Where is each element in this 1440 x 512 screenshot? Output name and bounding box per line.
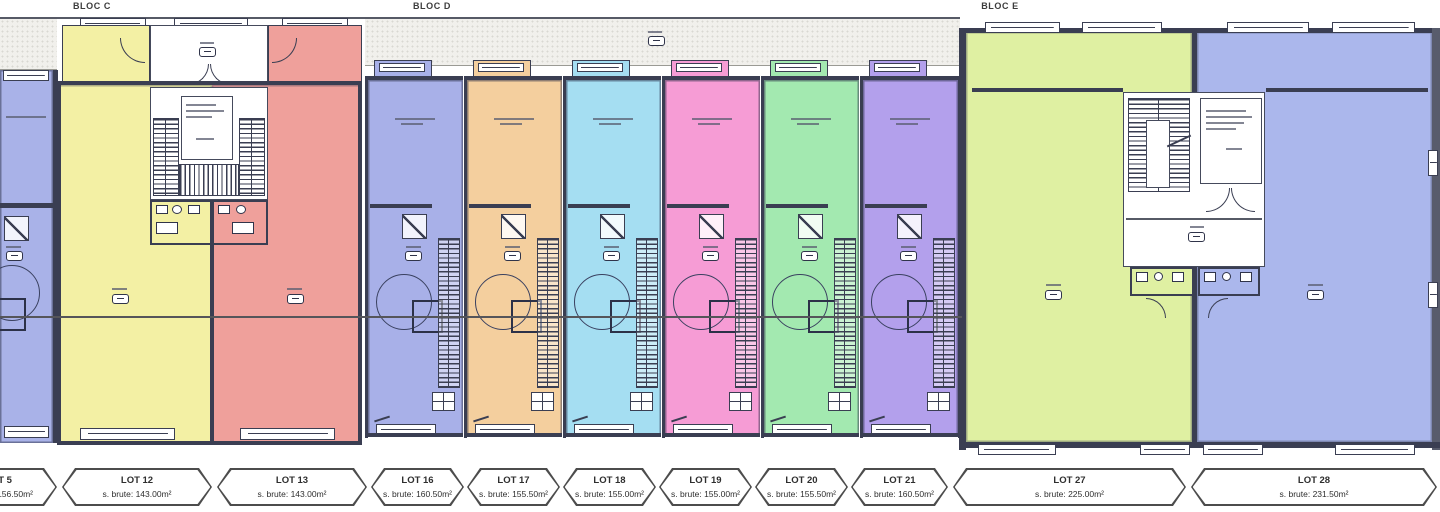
lot17-staircase (537, 238, 559, 388)
lot20-top-wall (764, 76, 859, 80)
lot5-tag-placeholder (6, 246, 21, 248)
lot-tag-area: s. brute: 155.50m² (757, 489, 847, 499)
lot16-window-grid-icon (432, 392, 455, 411)
blocC-party-wall (210, 245, 214, 445)
lot12-tub-icon (156, 222, 178, 234)
lot-tag-title: LOT 17 (469, 475, 559, 486)
lot12-drain-icon (112, 294, 129, 304)
lot19-top-wall (665, 76, 760, 80)
lot13-tub-icon (232, 222, 254, 234)
lot27-bottom-window-2 (1140, 444, 1190, 455)
lot12-shower-icon (188, 205, 200, 214)
lot18-room-label-placeholder (593, 118, 633, 120)
lot-tag-box: LOT 18s. brute: 155.00m² (565, 470, 655, 505)
lot-tag-area: s. brute: 231.50m² (1193, 489, 1436, 499)
lot-tag-area: s. brute: 143.00m² (64, 489, 211, 499)
lot-tag-area: s. brute: 143.00m² (219, 489, 366, 499)
lot18-mid-wall (568, 204, 630, 208)
lot18-balcony-sill (577, 63, 623, 72)
lot-tag-box: LOT 12s. brute: 143.00m² (64, 470, 211, 505)
lot16-room-label-placeholder (395, 118, 435, 120)
hall-drain-icon (199, 47, 216, 57)
bloc-c-label: BLOC C (52, 1, 132, 11)
lot20-window-grid-icon (828, 392, 851, 411)
lot-tag-3: LOT 13s. brute: 143.00m² (217, 468, 367, 506)
lot17-balcony-sill (478, 63, 524, 72)
blocE-stair-core (1146, 120, 1170, 188)
lot-tag-box: LOT 5s. brute: 156.50m² (0, 470, 55, 505)
lot20-staircase (834, 238, 856, 388)
lot-tag-title: LOT 20 (757, 475, 847, 486)
lot5-top-window (3, 70, 49, 81)
lot-tag-area: s. brute: 160.50m² (373, 489, 463, 499)
lot18-skylight-icon (600, 214, 625, 239)
lot18-room-label2-placeholder (599, 123, 621, 125)
lot-tag-box: LOT 17s. brute: 155.50m² (469, 470, 559, 505)
blocC-stair-left (153, 118, 179, 196)
blocE-hall-drain-icon (1188, 232, 1205, 242)
blocE-room-text-3 (1206, 122, 1244, 124)
lot21-bottom-wall (863, 433, 958, 437)
blocE-right-wall (1432, 28, 1440, 450)
lot17-skylight-icon (501, 214, 526, 239)
blocE-room-text-2 (1206, 116, 1252, 118)
lot13-tag-placeholder (287, 288, 302, 290)
lot21-room-label-placeholder (890, 118, 930, 120)
lot-tag-7: LOT 19s. brute: 155.00m² (659, 468, 752, 506)
lot5-counter (0, 298, 26, 331)
lot27-tag-placeholder (1046, 284, 1061, 286)
bloc-d-label: BLOC D (392, 1, 472, 11)
hall-label-placeholder (200, 42, 214, 44)
lot-tag-4: LOT 16s. brute: 160.50m² (371, 468, 464, 506)
lot-tag-area: s. brute: 156.50m² (0, 489, 55, 499)
lot18-bottom-wall (566, 433, 661, 437)
lot27-drain-icon (1045, 290, 1062, 300)
floorplan-canvas: BLOC C BLOC D BLOC E (0, 0, 1440, 512)
lot19-tag-placeholder (703, 246, 718, 248)
lot-tag-6: LOT 18s. brute: 155.00m² (563, 468, 656, 506)
lot-tag-2: LOT 12s. brute: 143.00m² (62, 468, 212, 506)
blocE-left-wall (959, 28, 966, 450)
lot-tag-title: LOT 13 (219, 475, 366, 486)
lot28-top-window-2 (1332, 22, 1415, 33)
blocE-room-text-5 (1226, 148, 1242, 150)
lot-tag-title: LOT 12 (64, 475, 211, 486)
lot20-drain-icon (801, 251, 818, 261)
blocE-room-text-1 (1206, 110, 1246, 112)
lot5-room-label-placeholder (6, 116, 46, 118)
lot17-room-label-placeholder (494, 118, 534, 120)
lot27-bottom-window-1 (978, 444, 1056, 455)
lot-tag-box: LOT 19s. brute: 155.00m² (661, 470, 751, 505)
lot5-divider-wall (0, 203, 53, 208)
lot-tag-title: LOT 16 (373, 475, 463, 486)
lot-tag-box: LOT 20s. brute: 155.50m² (757, 470, 847, 505)
lot16-staircase (438, 238, 460, 388)
lot18-drain-icon (603, 251, 620, 261)
blocE-hall-label-placeholder (1190, 226, 1204, 228)
lot-tag-area: s. brute: 155.50m² (469, 489, 559, 499)
lot12-wc-icon (156, 205, 168, 214)
lot16-tag-placeholder (406, 246, 421, 248)
lot27-top-window-1 (985, 22, 1060, 33)
lot16-top-wall (368, 76, 463, 80)
lot19-balcony-sill (676, 63, 722, 72)
lot21-staircase (933, 238, 955, 388)
lot-tag-title: LOT 18 (565, 475, 655, 486)
lot18-top-wall (566, 76, 661, 80)
lot13-wc-icon (218, 205, 230, 214)
lot27-top-window-2 (1082, 22, 1162, 33)
lot21-window-grid-icon (927, 392, 950, 411)
lot-tag-area: s. brute: 155.00m² (565, 489, 655, 499)
lot21-room-label2-placeholder (896, 123, 918, 125)
lot-tag-8: LOT 20s. brute: 155.50m² (755, 468, 848, 506)
lot-tag-11: LOT 28s. brute: 231.50m² (1191, 468, 1437, 506)
elev-text-3 (186, 116, 212, 118)
lot21-top-wall (863, 76, 958, 80)
lot-tag-area: s. brute: 225.00m² (955, 489, 1185, 499)
blocC-top-wall (57, 81, 362, 85)
lot17-top-wall (467, 76, 562, 80)
lot-tag-box: LOT 27s. brute: 225.00m² (955, 470, 1185, 505)
lot28-right-window-2 (1428, 282, 1438, 308)
lot16-room-label2-placeholder (401, 123, 423, 125)
lot19-drain-icon (702, 251, 719, 261)
lot-tag-area: s. brute: 160.50m² (853, 489, 947, 499)
lot28-bottom-window-2 (1335, 444, 1415, 455)
lot5-fixture-icon (6, 251, 23, 261)
blocC-stair-right (239, 118, 265, 196)
lot5-skylight-icon (4, 216, 29, 241)
lot12-tag-placeholder (112, 288, 127, 290)
lot20-skylight-icon (798, 214, 823, 239)
lot21-skylight-icon (897, 214, 922, 239)
lot28-shower-icon (1240, 272, 1252, 282)
lot21-tag-placeholder (901, 246, 916, 248)
lot-tag-1: LOT 5s. brute: 156.50m² (0, 468, 57, 506)
lot13-drain-icon (287, 294, 304, 304)
lot28-top-window-1 (1227, 22, 1309, 33)
lot20-mid-wall (766, 204, 828, 208)
lot28-right-window-1 (1428, 150, 1438, 176)
lot28-wc-icon (1204, 272, 1216, 282)
lot18-staircase (636, 238, 658, 388)
lot-tag-9: LOT 21s. brute: 160.50m² (851, 468, 948, 506)
lot20-balcony-sill (775, 63, 821, 72)
lot17-room-label2-placeholder (500, 123, 522, 125)
lot-tag-title: LOT 5 (0, 475, 55, 486)
lot19-staircase (735, 238, 757, 388)
blocC-left-wall (57, 85, 61, 445)
lot16-skylight-icon (402, 214, 427, 239)
lot28-sink-icon (1222, 272, 1231, 281)
lot17-mid-wall (469, 204, 531, 208)
section-cut-line (0, 316, 962, 318)
lot-tag-box: LOT 13s. brute: 143.00m² (219, 470, 366, 505)
lot20-bottom-wall (764, 433, 859, 437)
lot-tag-10: LOT 27s. brute: 225.00m² (953, 468, 1186, 506)
lot27-shower-icon (1172, 272, 1184, 282)
lot16-balcony-sill (379, 63, 425, 72)
lot21-balcony-sill (874, 63, 920, 72)
lot27-inner-wall (972, 88, 1123, 92)
lot17-tag-placeholder (505, 246, 520, 248)
lot13-bottom-window (240, 428, 335, 440)
lot16-bottom-wall (368, 433, 463, 437)
elev-text-4 (196, 138, 214, 140)
walkway-left (0, 19, 57, 70)
lot18-tag-placeholder (604, 246, 619, 248)
lot19-room-label-placeholder (692, 118, 732, 120)
lot19-mid-wall (667, 204, 729, 208)
lot-tag-box: LOT 16s. brute: 160.50m² (373, 470, 463, 505)
lot18-window-grid-icon (630, 392, 653, 411)
lot17-window-grid-icon (531, 392, 554, 411)
blocE-room-text-4 (1206, 128, 1236, 130)
lot-tag-box: LOT 28s. brute: 231.50m² (1193, 470, 1436, 505)
elev-text-2 (186, 110, 224, 112)
lot-tag-title: LOT 28 (1193, 475, 1436, 486)
lot13-sink-icon (236, 205, 246, 214)
lot28-inner-wall (1266, 88, 1428, 92)
lot20-room-label2-placeholder (797, 123, 819, 125)
lot27-sink-icon (1154, 272, 1163, 281)
lot19-room-label2-placeholder (698, 123, 720, 125)
lot20-tag-placeholder (802, 246, 817, 248)
bloc-e-label: BLOC E (960, 1, 1040, 11)
blocE-hall-divider (1126, 218, 1262, 220)
lot5-bottom-window (4, 426, 49, 438)
blocC-right-wall (358, 85, 362, 445)
lot19-window-grid-icon (729, 392, 752, 411)
lot17-bottom-wall (467, 433, 562, 437)
lot21-mid-wall (865, 204, 927, 208)
lot19-bottom-wall (665, 433, 760, 437)
elev-text-1 (186, 104, 216, 106)
walkway-label-placeholder (648, 31, 662, 33)
lot27-wc-icon (1136, 272, 1148, 282)
lot12-sink-icon (172, 205, 182, 214)
lot-tag-title: LOT 19 (661, 475, 751, 486)
lot16-drain-icon (405, 251, 422, 261)
lot-tag-5: LOT 17s. brute: 155.50m² (467, 468, 560, 506)
lot12-bottom-window (80, 428, 175, 440)
lot-tag-title: LOT 27 (955, 475, 1185, 486)
lot17-drain-icon (504, 251, 521, 261)
lot28-tag-placeholder (1308, 284, 1323, 286)
lot19-skylight-icon (699, 214, 724, 239)
lot21-drain-icon (900, 251, 917, 261)
walkway-drain-icon (648, 36, 665, 46)
blocC-stair-bottom (179, 164, 239, 196)
lot16-mid-wall (370, 204, 432, 208)
lot28-drain-icon (1307, 290, 1324, 300)
lot-tag-title: LOT 21 (853, 475, 947, 486)
lot28-bottom-window-1 (1203, 444, 1263, 455)
lot-tag-box: LOT 21s. brute: 160.50m² (853, 470, 947, 505)
lot20-room-label-placeholder (791, 118, 831, 120)
lot-tag-area: s. brute: 155.00m² (661, 489, 751, 499)
